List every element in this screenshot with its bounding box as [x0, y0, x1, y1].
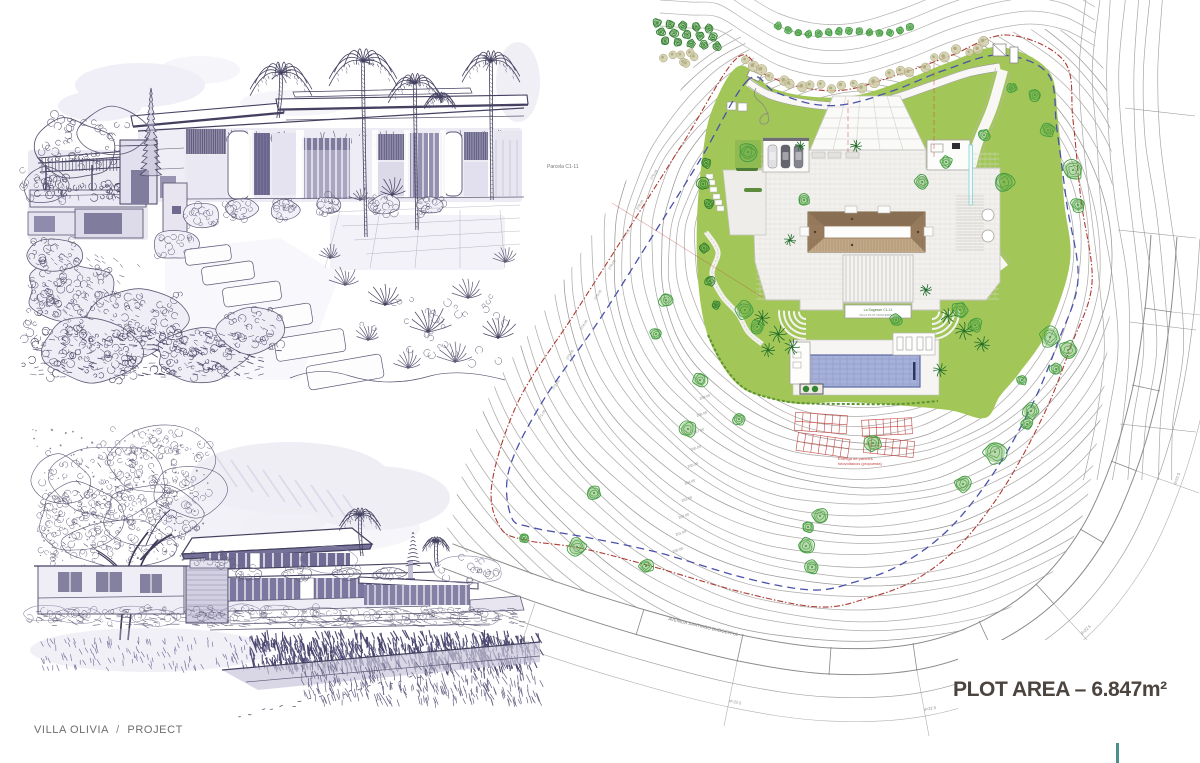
svg-text:264.00: 264.00 [684, 478, 696, 486]
svg-text:262.00: 262.00 [678, 512, 690, 520]
svg-text:266.00: 266.00 [690, 444, 702, 452]
svg-text:fotovoltaicos (propuesta): fotovoltaicos (propuesta) [838, 461, 882, 466]
svg-text:261.00: 261.00 [675, 529, 687, 537]
svg-text:260.00: 260.00 [672, 546, 684, 554]
svg-text:d=22.5: d=22.5 [923, 705, 937, 712]
svg-text:d=22.5: d=22.5 [1172, 471, 1181, 485]
svg-text:271.00: 271.00 [537, 409, 546, 420]
svg-text:274.00: 274.00 [579, 319, 588, 330]
svg-text:276.00: 276.00 [607, 259, 616, 270]
svg-text:277.00: 277.00 [621, 229, 630, 240]
svg-text:275.00: 275.00 [593, 289, 602, 300]
svg-text:d=22.5: d=22.5 [729, 698, 743, 706]
svg-text:273.00: 273.00 [565, 349, 574, 360]
svg-text:278.00: 278.00 [635, 199, 644, 210]
svg-text:Parcela C1-11: Parcela C1-11 [547, 164, 579, 170]
svg-text:La Sagesse C1-11: La Sagesse C1-11 [864, 308, 893, 312]
svg-text:263.00: 263.00 [681, 495, 693, 503]
svg-text:AVENIDA SANTIAGO BUDGETFUL: AVENIDA SANTIAGO BUDGETFUL [668, 616, 740, 637]
svg-text:265.00: 265.00 [687, 461, 699, 469]
